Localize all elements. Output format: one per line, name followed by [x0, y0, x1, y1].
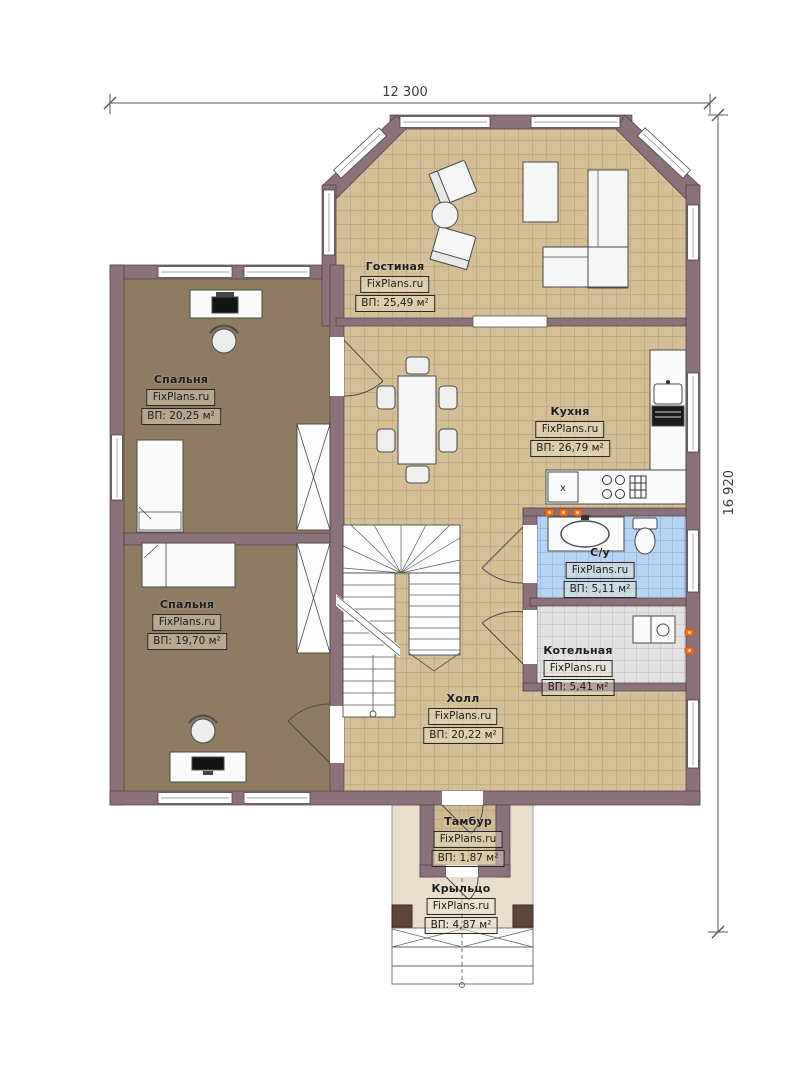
toilet-tank [633, 518, 657, 529]
floor-plan-canvas: x [0, 0, 792, 1080]
faucet [581, 515, 589, 520]
dining-table [398, 376, 436, 464]
kitchen-oven [652, 406, 684, 426]
wall-leftwing-left [110, 265, 124, 805]
wall-vestibule-bottom-left [420, 865, 446, 877]
kitchen-appliance-mark: x [560, 483, 566, 494]
stair-flight-right [409, 573, 460, 655]
desk-chair-top [212, 329, 236, 353]
wall-boiler-hall [523, 683, 686, 691]
floor-living [336, 129, 686, 318]
desk-chair-bottom [191, 719, 215, 743]
floor-plan-drawing: x [0, 0, 792, 1080]
wall-bath-boiler [530, 598, 686, 606]
bed-top [137, 440, 183, 532]
sink-basin [561, 521, 609, 547]
monitor [192, 757, 224, 770]
porch-pillar-right [513, 905, 533, 927]
bed-bottom [142, 543, 235, 587]
toilet-bowl [635, 528, 655, 554]
coffee-table [432, 202, 458, 228]
kitchen-sink [654, 384, 682, 404]
side-table [523, 162, 558, 222]
printer [212, 297, 238, 313]
wall-vestibule-bottom-right [478, 865, 510, 877]
porch-pillar-left [392, 905, 412, 927]
floor-vestibule [434, 805, 496, 865]
living-kitchen-opening [473, 316, 547, 327]
dimension-width-label: 12 300 [382, 85, 428, 100]
dimension-height-label: 16 920 [722, 470, 737, 516]
